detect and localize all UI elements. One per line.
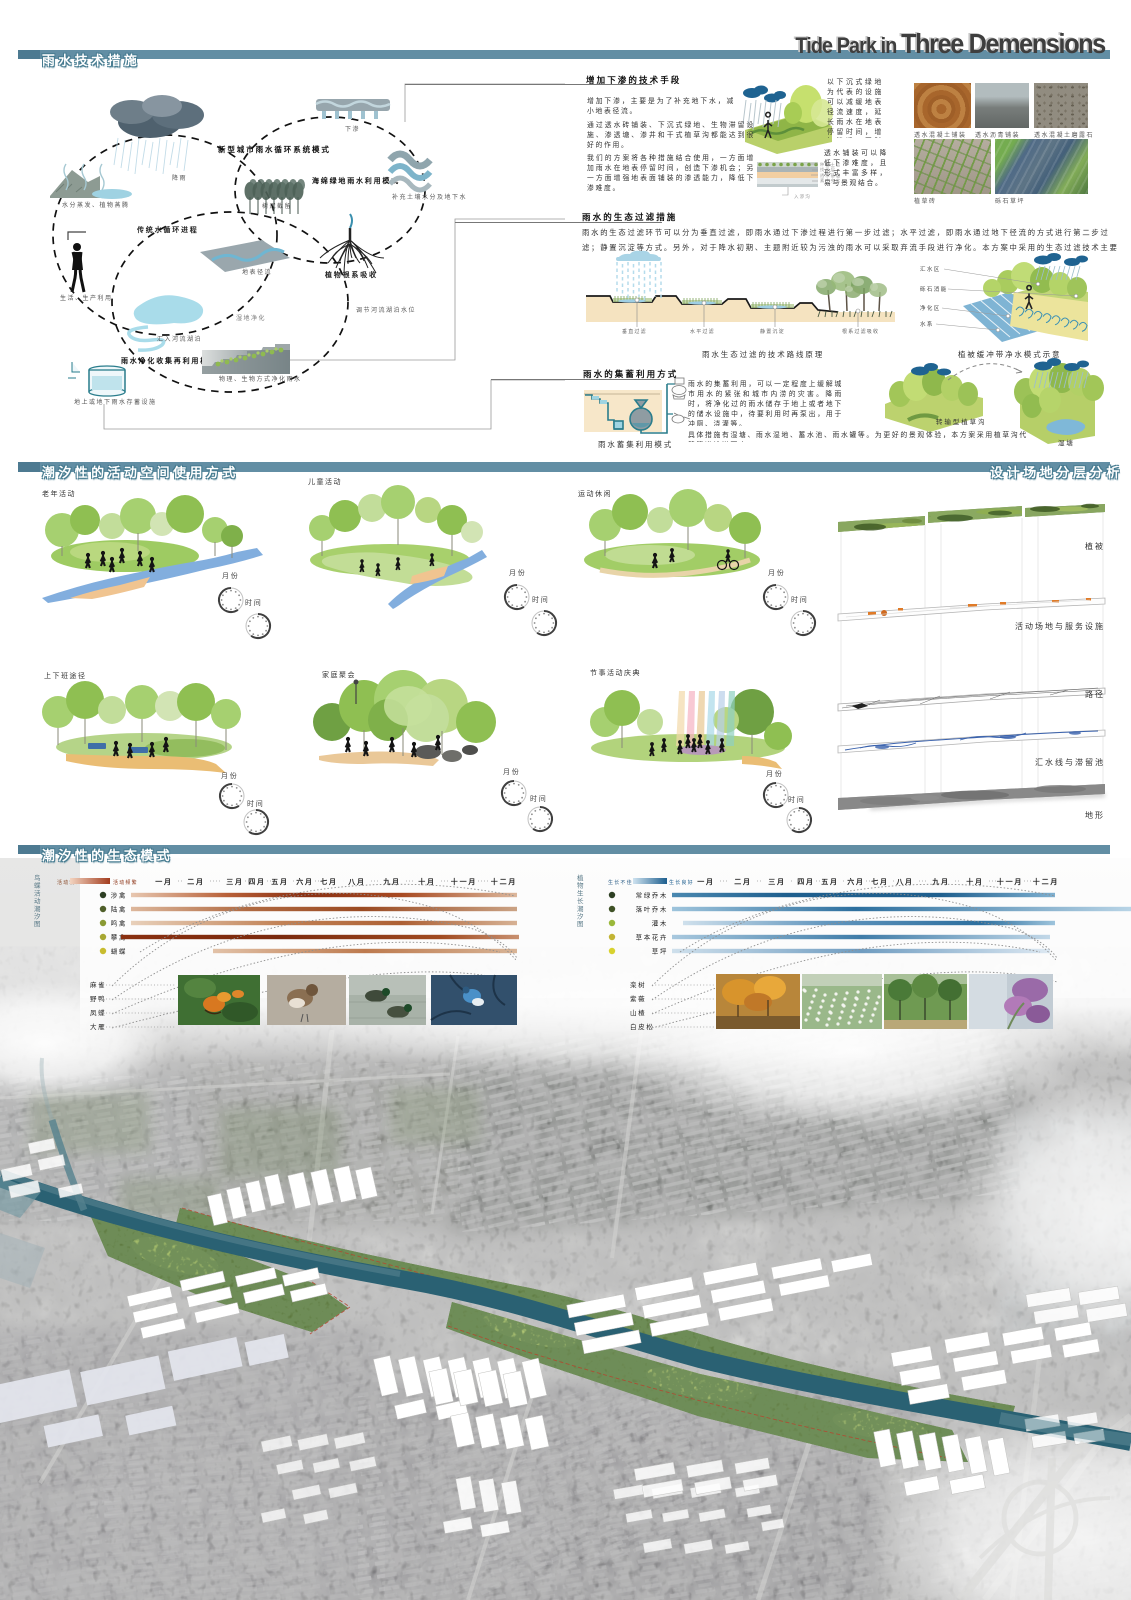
svg-text:地表径流: 地表径流 (242, 268, 272, 276)
svg-text:地形: 地形 (1085, 810, 1105, 820)
svg-text:路径: 路径 (1085, 689, 1105, 699)
svg-text:活动场地与服务设施: 活动场地与服务设施 (1015, 621, 1105, 631)
svg-text:活: 活 (34, 888, 41, 897)
svg-text:生长不佳: 生长不佳 (608, 879, 633, 886)
svg-text:四月: 四月 (248, 878, 266, 886)
svg-text:生: 生 (577, 888, 584, 897)
svg-text:静置沉淀: 静置沉淀 (760, 328, 785, 335)
svg-text:草坪: 草坪 (652, 947, 668, 956)
svg-text:净化区: 净化区 (920, 304, 941, 312)
svg-text:二月: 二月 (187, 878, 205, 886)
svg-text:图: 图 (34, 920, 41, 928)
svg-text:涉禽: 涉禽 (111, 891, 127, 900)
svg-text:月份: 月份 (768, 568, 786, 577)
svg-text:湿地净化: 湿地净化 (236, 314, 266, 322)
svg-text:入渗沟: 入渗沟 (794, 193, 811, 200)
svg-text:鸣禽: 鸣禽 (111, 919, 127, 928)
svg-text:六月: 六月 (296, 877, 314, 886)
svg-text:水平过滤: 水平过滤 (690, 328, 715, 335)
svg-text:时间: 时间 (791, 595, 809, 604)
svg-text:五月: 五月 (271, 878, 289, 886)
svg-text:月份: 月份 (503, 767, 521, 776)
svg-text:砾石消能: 砾石消能 (920, 285, 948, 293)
svg-text:三月: 三月 (226, 878, 244, 886)
svg-text:蝴蝶: 蝴蝶 (111, 947, 127, 956)
svg-text:动: 动 (34, 897, 41, 905)
svg-text:垂直过滤: 垂直过滤 (622, 328, 647, 335)
svg-text:七月: 七月 (320, 877, 338, 886)
svg-text:潮: 潮 (34, 904, 41, 913)
svg-text:白皮松: 白皮松 (630, 1022, 654, 1031)
svg-text:十一月: 十一月 (997, 877, 1023, 886)
svg-text:十一月: 十一月 (451, 877, 477, 886)
svg-text:汇水线与滞留池: 汇水线与滞留池 (1035, 757, 1105, 767)
svg-text:海绵绿地雨水利用模式: 海绵绿地雨水利用模式 (312, 176, 400, 185)
svg-text:十月: 十月 (418, 877, 436, 886)
svg-text:生活、生产利用: 生活、生产利用 (60, 294, 113, 302)
svg-text:六月: 六月 (847, 877, 865, 886)
svg-text:降雨: 降雨 (172, 174, 187, 182)
svg-text:二月: 二月 (734, 878, 752, 886)
svg-text:汇水区: 汇水区 (920, 265, 941, 273)
svg-text:水分蒸发、植物蒸腾: 水分蒸发、植物蒸腾 (62, 201, 130, 209)
svg-text:图: 图 (577, 920, 584, 928)
svg-text:地上或地下雨水存蓄设施: 地上或地下雨水存蓄设施 (74, 398, 157, 406)
svg-text:时间: 时间 (530, 794, 548, 803)
svg-text:生长良好: 生长良好 (669, 879, 694, 886)
svg-text:植: 植 (577, 873, 584, 882)
svg-text:草本花卉: 草本花卉 (636, 933, 668, 942)
svg-text:时间: 时间 (245, 598, 263, 607)
svg-text:植物根系吸收: 植物根系吸收 (324, 270, 378, 279)
svg-text:五月: 五月 (821, 878, 839, 886)
svg-text:补充土壤水分及地下水: 补充土壤水分及地下水 (392, 193, 467, 201)
svg-text:凤蝶: 凤蝶 (90, 1008, 106, 1017)
svg-text:调节河流湖泊水位: 调节河流湖泊水位 (356, 306, 416, 314)
svg-text:蝶: 蝶 (34, 881, 41, 890)
svg-text:栾树: 栾树 (630, 980, 646, 989)
svg-text:月份: 月份 (509, 568, 527, 577)
svg-text:月份: 月份 (766, 769, 784, 778)
svg-text:汇入河流湖泊: 汇入河流湖泊 (157, 335, 202, 343)
svg-text:一月: 一月 (155, 878, 173, 886)
svg-text:鸟: 鸟 (34, 873, 41, 882)
svg-text:树冠截留: 树冠截留 (262, 202, 292, 210)
svg-text:活动频繁: 活动频繁 (113, 879, 138, 886)
svg-text:落叶乔木: 落叶乔木 (636, 905, 668, 914)
svg-text:时间: 时间 (532, 595, 550, 604)
svg-text:汐: 汐 (34, 912, 41, 921)
svg-text:时间: 时间 (788, 795, 806, 804)
svg-text:山楂: 山楂 (630, 1008, 646, 1017)
svg-text:十二月: 十二月 (491, 877, 517, 886)
svg-text:紫薇: 紫薇 (630, 994, 646, 1003)
svg-text:四月: 四月 (797, 878, 815, 886)
svg-text:潮: 潮 (577, 904, 584, 913)
svg-text:物: 物 (577, 881, 584, 890)
svg-text:时间: 时间 (247, 799, 265, 808)
svg-text:水系: 水系 (920, 320, 934, 328)
svg-text:物理、生物方式净化雨水: 物理、生物方式净化雨水 (219, 375, 302, 383)
svg-text:长: 长 (577, 896, 584, 905)
svg-text:三月: 三月 (768, 878, 786, 886)
svg-text:八月: 八月 (895, 878, 914, 886)
svg-text:植被: 植被 (1085, 541, 1105, 551)
svg-text:月份: 月份 (221, 771, 239, 780)
svg-text:常绿乔木: 常绿乔木 (636, 891, 668, 900)
svg-text:野鸭: 野鸭 (90, 994, 106, 1003)
svg-text:十二月: 十二月 (1033, 877, 1059, 886)
svg-text:七月: 七月 (871, 877, 889, 886)
svg-text:麻雀: 麻雀 (90, 980, 106, 989)
svg-text:灌木: 灌木 (652, 919, 668, 928)
svg-text:下渗: 下渗 (345, 125, 360, 133)
svg-text:汐: 汐 (577, 912, 584, 921)
svg-text:新型城市雨水循环系统模式: 新型城市雨水循环系统模式 (218, 144, 331, 154)
svg-text:月份: 月份 (222, 571, 240, 580)
svg-text:陆禽: 陆禽 (111, 905, 127, 914)
svg-text:传统水循环进程: 传统水循环进程 (136, 225, 199, 234)
svg-text:根系过滤吸收: 根系过滤吸收 (842, 328, 879, 335)
svg-text:一月: 一月 (697, 878, 715, 886)
svg-text:大雁: 大雁 (90, 1022, 106, 1031)
svg-text:八月: 八月 (347, 878, 366, 886)
